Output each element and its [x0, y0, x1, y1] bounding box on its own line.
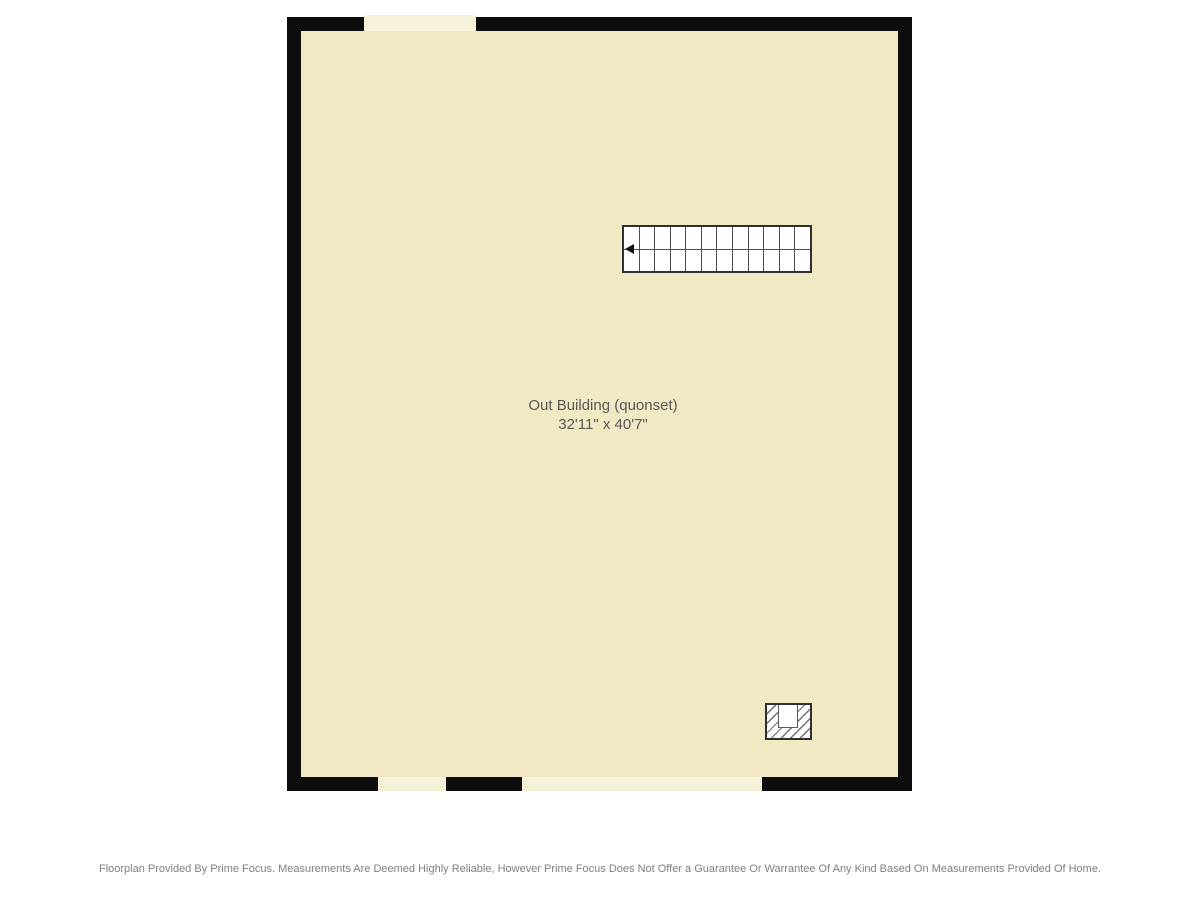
fireplace-notch: [778, 705, 798, 728]
fireplace-icon: [765, 703, 812, 740]
room-dimensions: 32'11" x 40'7": [453, 416, 753, 435]
floorplan-page: Out Building (quonset) 32'11" x 40'7" Fl…: [0, 0, 1200, 900]
room-label: Out Building (quonset) 32'11" x 40'7": [453, 397, 753, 434]
wall-opening-bottom-left: [378, 777, 446, 791]
wall-opening-bottom-right: [522, 777, 762, 791]
disclaimer-text: Floorplan Provided By Prime Focus. Measu…: [0, 862, 1200, 876]
left-arrow-icon: [625, 244, 634, 254]
stairs-icon: [622, 225, 812, 273]
wall-opening-top: [364, 15, 476, 31]
stairs-walkline: [624, 249, 810, 250]
room-name: Out Building (quonset): [453, 397, 753, 416]
